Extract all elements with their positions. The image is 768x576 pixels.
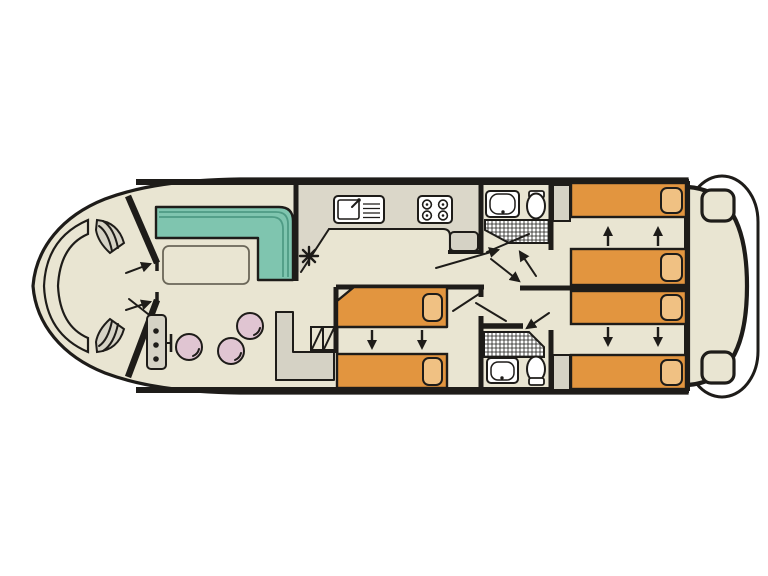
wardrobe-port <box>553 355 570 390</box>
hob-4-burners <box>418 196 452 223</box>
pillow <box>661 188 682 213</box>
stern-step-starboard <box>702 190 734 221</box>
fridge-unit <box>450 232 478 251</box>
stool-3 <box>237 313 263 339</box>
dining-table <box>163 246 249 284</box>
shower-room-forward <box>485 191 549 243</box>
washbasin-aft <box>487 358 518 383</box>
boat-deck-plan-canvas <box>0 0 768 576</box>
companionway-steps <box>311 327 335 350</box>
toilet-aft <box>527 357 545 386</box>
shower-room-aft <box>484 332 545 385</box>
sink-unit <box>334 196 384 223</box>
boat-floor-plan <box>0 0 768 576</box>
pillow <box>661 295 682 320</box>
asterisk-symbol <box>300 247 318 265</box>
pillow <box>661 360 682 385</box>
pillow <box>423 358 442 385</box>
pillow <box>423 294 442 321</box>
stern-step-port <box>702 352 734 383</box>
washbasin-forward <box>486 191 519 217</box>
stool-2 <box>218 338 244 364</box>
wardrobe-starboard <box>553 185 570 221</box>
toilet-forward <box>527 191 545 219</box>
stool-1 <box>176 334 202 360</box>
pillow <box>661 254 682 281</box>
